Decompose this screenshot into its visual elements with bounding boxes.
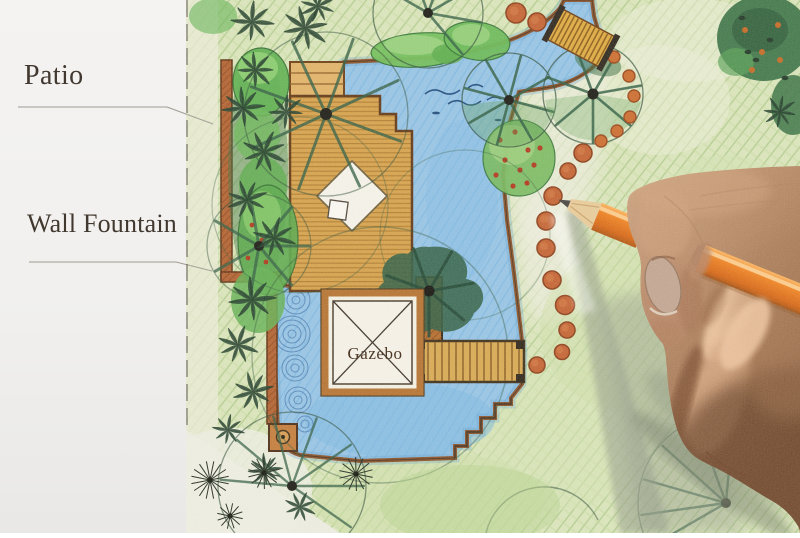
svg-text:Wall Fountain: Wall Fountain xyxy=(27,209,177,238)
svg-text:Patio: Patio xyxy=(24,60,84,91)
